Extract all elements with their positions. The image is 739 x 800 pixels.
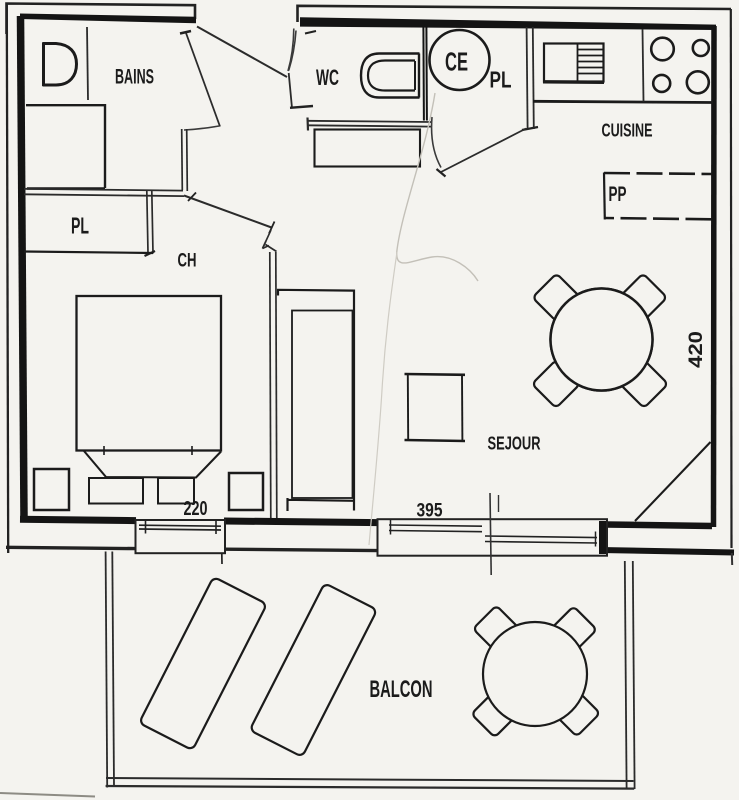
svg-text:PL: PL bbox=[71, 213, 89, 239]
svg-text:CH: CH bbox=[178, 251, 197, 272]
svg-text:CE: CE bbox=[445, 47, 468, 77]
svg-text:PP: PP bbox=[609, 182, 627, 206]
svg-text:BAINS: BAINS bbox=[115, 66, 154, 89]
svg-text:395: 395 bbox=[417, 501, 443, 522]
svg-text:420: 420 bbox=[685, 331, 707, 368]
svg-text:WC: WC bbox=[316, 65, 339, 90]
svg-text:BALCON: BALCON bbox=[370, 676, 433, 703]
svg-text:220: 220 bbox=[184, 497, 208, 520]
svg-text:CUISINE: CUISINE bbox=[602, 121, 653, 141]
svg-text:SEJOUR: SEJOUR bbox=[488, 433, 541, 454]
svg-text:PL: PL bbox=[490, 67, 512, 93]
